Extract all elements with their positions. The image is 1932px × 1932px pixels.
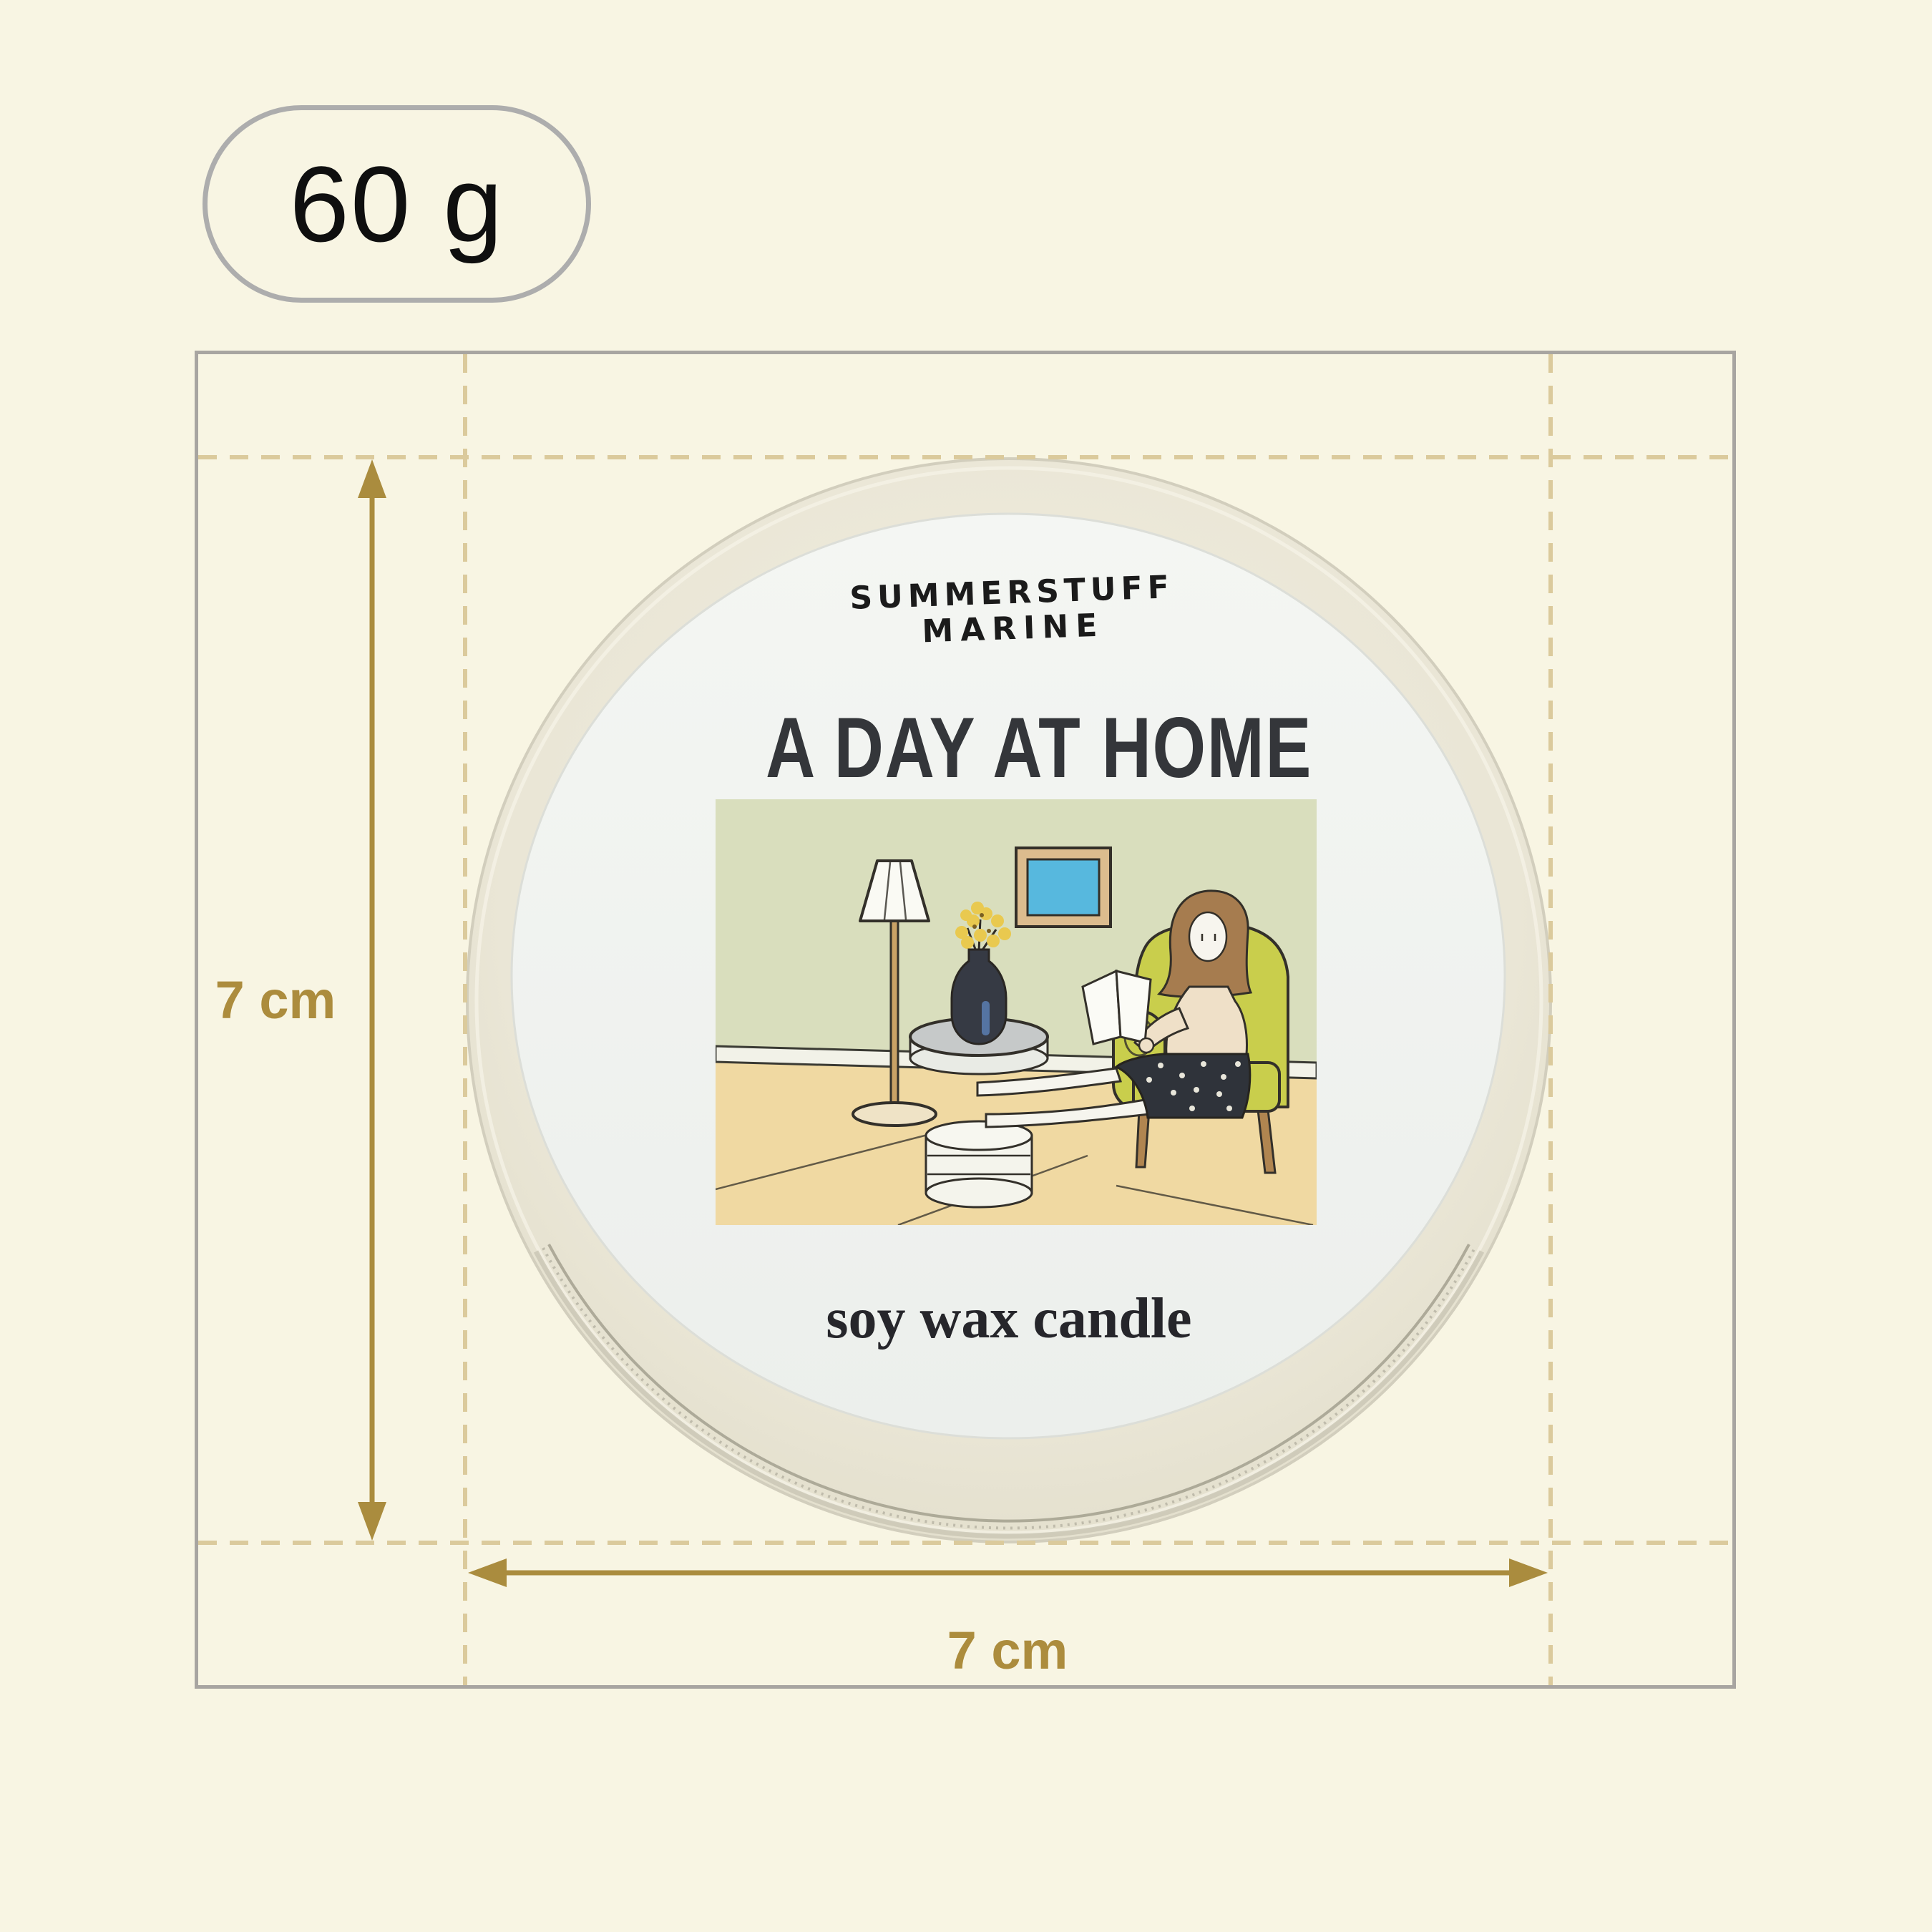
face [1189,912,1226,961]
picture-frame [1016,848,1111,927]
height-label: 7 cm [168,967,383,1032]
width-label: 7 cm [900,1618,1115,1682]
product-dimension-diagram: 60 g [0,0,1932,1932]
product-title: A DAY AT HOME [766,708,1252,787]
product-subtitle: soy wax candle [758,1287,1259,1352]
label-illustration [716,799,1317,1225]
book-stack [926,1121,1032,1207]
brand-name: SUMMERSTUFF MARINE [796,568,1228,655]
width-arrow [468,1558,1548,1587]
hand [1139,1038,1153,1053]
